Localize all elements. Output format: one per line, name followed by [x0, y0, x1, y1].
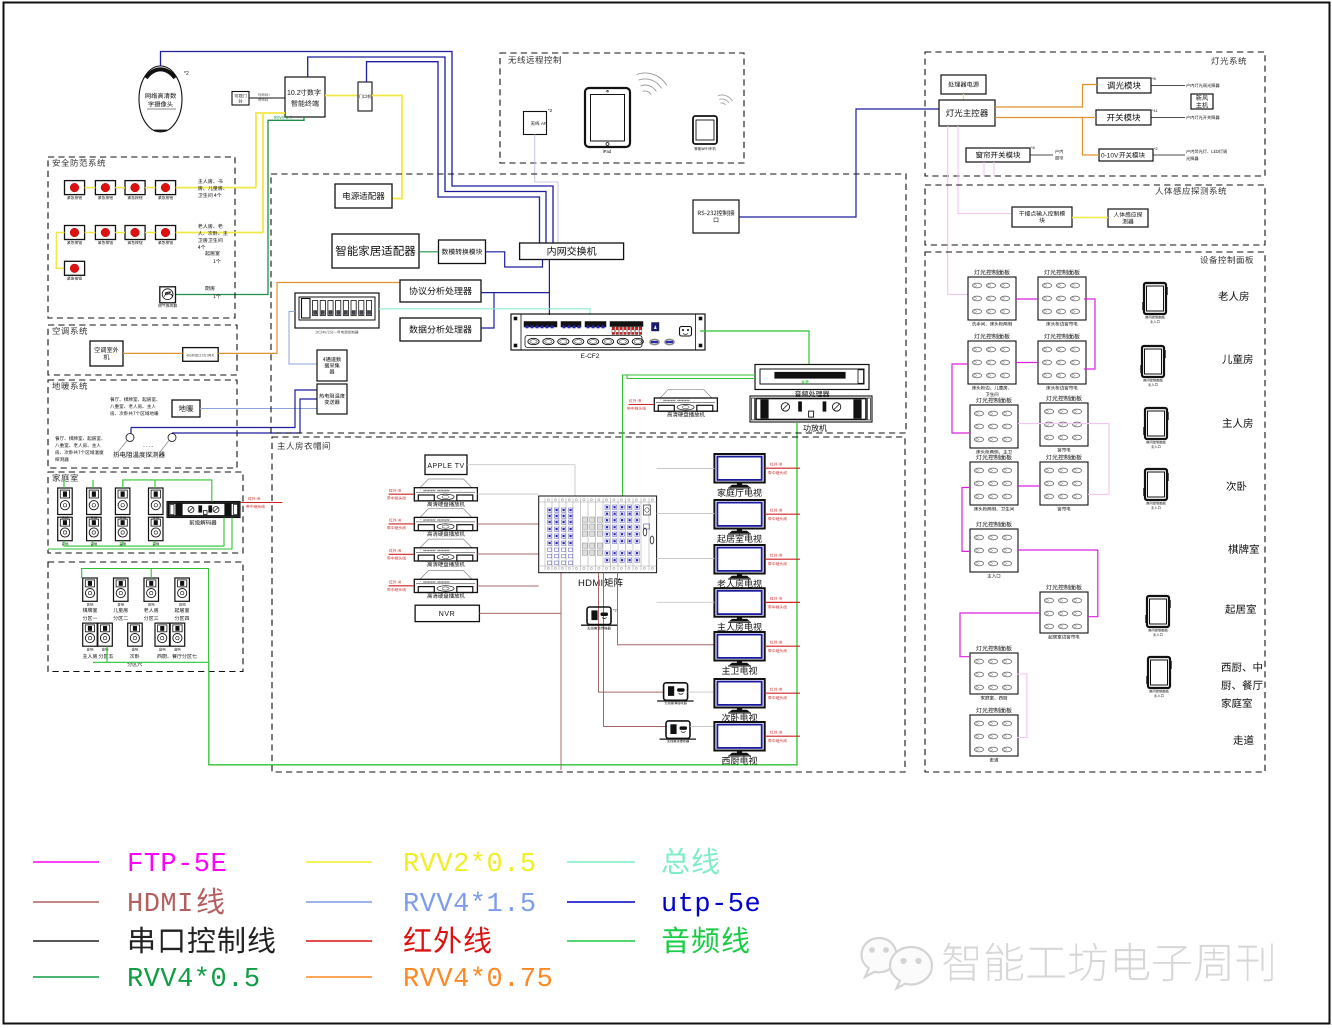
svg-text:* ######## ########: * ######## ########	[420, 580, 450, 584]
svg-text:RVV2*0.5: RVV2*0.5	[403, 850, 537, 880]
svg-text:RVV4*0.5: RVV4*0.5	[127, 965, 261, 995]
svg-text:* ######## ########: * ######## ########	[660, 399, 690, 403]
svg-text:0-10V: 0-10V	[1101, 153, 1119, 160]
svg-text:AP: AP	[541, 121, 547, 126]
svg-text:E-CF2: E-CF2	[581, 353, 600, 360]
svg-text:APPLE TV: APPLE TV	[427, 463, 464, 470]
svg-text:*2: *2	[548, 108, 553, 113]
svg-text:*8: *8	[1031, 145, 1036, 150]
svg-text:NVR: NVR	[439, 611, 456, 618]
svg-text:HDMI: HDMI	[127, 890, 194, 920]
svg-text:*2: *2	[1154, 146, 1159, 151]
svg-text:RVV4*0.75: RVV4*0.75	[403, 965, 553, 995]
svg-text:* ######## ########: * ######## ########	[420, 518, 450, 522]
svg-text:FTP-5E: FTP-5E	[127, 850, 227, 880]
svg-text:*2: *2	[613, 608, 618, 613]
svg-text:*2: *2	[184, 71, 189, 77]
svg-text:* ######## ########: * ######## ########	[420, 488, 450, 492]
svg-text:utp-5e: utp-5e	[661, 890, 761, 920]
svg-text:*8: *8	[1152, 76, 1157, 81]
svg-text:RVV4*1.5: RVV4*1.5	[403, 890, 537, 920]
svg-text:10.2: 10.2	[287, 90, 301, 97]
svg-text:* ######## ########: * ######## ########	[420, 548, 450, 552]
svg-text:iPad: iPad	[603, 149, 612, 154]
svg-text:HDMI: HDMI	[578, 578, 603, 589]
svg-text:*11: *11	[1152, 108, 1158, 113]
